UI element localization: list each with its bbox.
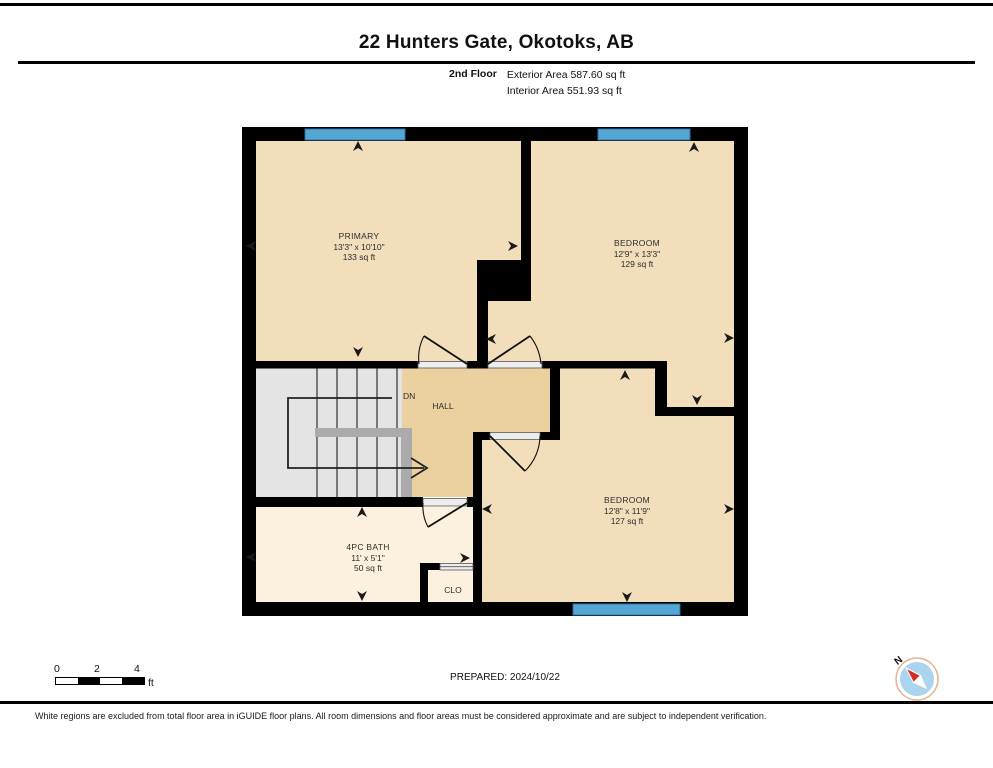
compass-icon: N xyxy=(890,650,946,706)
exterior-wall-left xyxy=(242,127,256,616)
stairs-down-label: DN xyxy=(403,391,433,401)
room-area: 127 sq ft xyxy=(547,516,707,527)
closet-label: CLO xyxy=(423,585,483,595)
threshold-bedroom-bottom-door xyxy=(490,433,540,440)
hall-label: HALL xyxy=(413,401,473,411)
wall-hall-bottom-b xyxy=(540,432,560,440)
room-dimensions: 12'8" x 11'9" xyxy=(547,506,707,517)
bedroom-bottom-label: BEDROOM 12'8" x 11'9" 127 sq ft xyxy=(547,495,707,527)
scale-tick: 4 xyxy=(134,663,140,675)
scale-unit: ft xyxy=(148,677,154,689)
room-name: 4PC BATH xyxy=(288,542,448,553)
wall-chase xyxy=(477,260,531,301)
room-dimensions: 12'9" x 13'3" xyxy=(557,249,717,260)
wall-bath-bedroom xyxy=(473,432,482,602)
room-area: 133 sq ft xyxy=(279,252,439,263)
window-bedroom-top xyxy=(598,129,690,140)
room-dimensions: 13'3" x 10'10" xyxy=(279,242,439,253)
primary-room-label: PRIMARY 13'3" x 10'10" 133 sq ft xyxy=(279,231,439,263)
exterior-wall-right xyxy=(734,127,748,616)
scale-tick: 0 xyxy=(54,663,60,675)
room-name: BEDROOM xyxy=(547,495,707,506)
room-name: PRIMARY xyxy=(279,231,439,242)
scale-ticks: 0 2 4 xyxy=(55,663,165,676)
room-dimensions: 11' x 5'1" xyxy=(288,553,448,564)
threshold-primary-door xyxy=(418,362,467,369)
stair-banister-horizontal xyxy=(315,428,412,437)
threshold-bedroom-top-door xyxy=(488,362,542,369)
floorplan-drawing xyxy=(0,0,993,768)
window-primary xyxy=(305,129,405,140)
threshold-bath-door xyxy=(423,499,467,507)
wall-bedroom-left xyxy=(477,299,488,368)
disclaimer-text: White regions are excluded from total fl… xyxy=(35,711,975,721)
wall-bath-top-b xyxy=(467,497,473,507)
room-name: BEDROOM xyxy=(557,238,717,249)
scale-bar: 0 2 4 ft xyxy=(55,663,165,685)
room-area: 50 sq ft xyxy=(288,563,448,574)
stair-banister-vertical xyxy=(401,428,412,497)
bedroom-top-label: BEDROOM 12'9" x 13'3" 129 sq ft xyxy=(557,238,717,270)
wall-hall-right xyxy=(550,361,560,440)
wall-step-vertical xyxy=(655,361,667,409)
floorplan-page: 22 Hunters Gate, Okotoks, AB 2nd Floor E… xyxy=(0,0,993,768)
scale-bar-segments xyxy=(55,677,145,685)
wall-bedroom-top-bottom xyxy=(542,361,667,369)
wall-hall-top-a xyxy=(256,361,418,369)
wall-bath-top-a xyxy=(242,497,423,507)
room-area: 129 sq ft xyxy=(557,259,717,270)
wall-step-horizontal xyxy=(655,407,734,416)
prepared-date: PREPARED: 2024/10/22 xyxy=(400,672,610,683)
bath-label: 4PC BATH 11' x 5'1" 50 sq ft xyxy=(288,542,448,574)
wall-hall-top-b xyxy=(467,361,488,369)
scale-tick: 2 xyxy=(94,663,100,675)
wall-primary-bedroom xyxy=(521,141,531,262)
footer-rule xyxy=(0,701,993,704)
window-bedroom-bottom xyxy=(573,604,680,615)
